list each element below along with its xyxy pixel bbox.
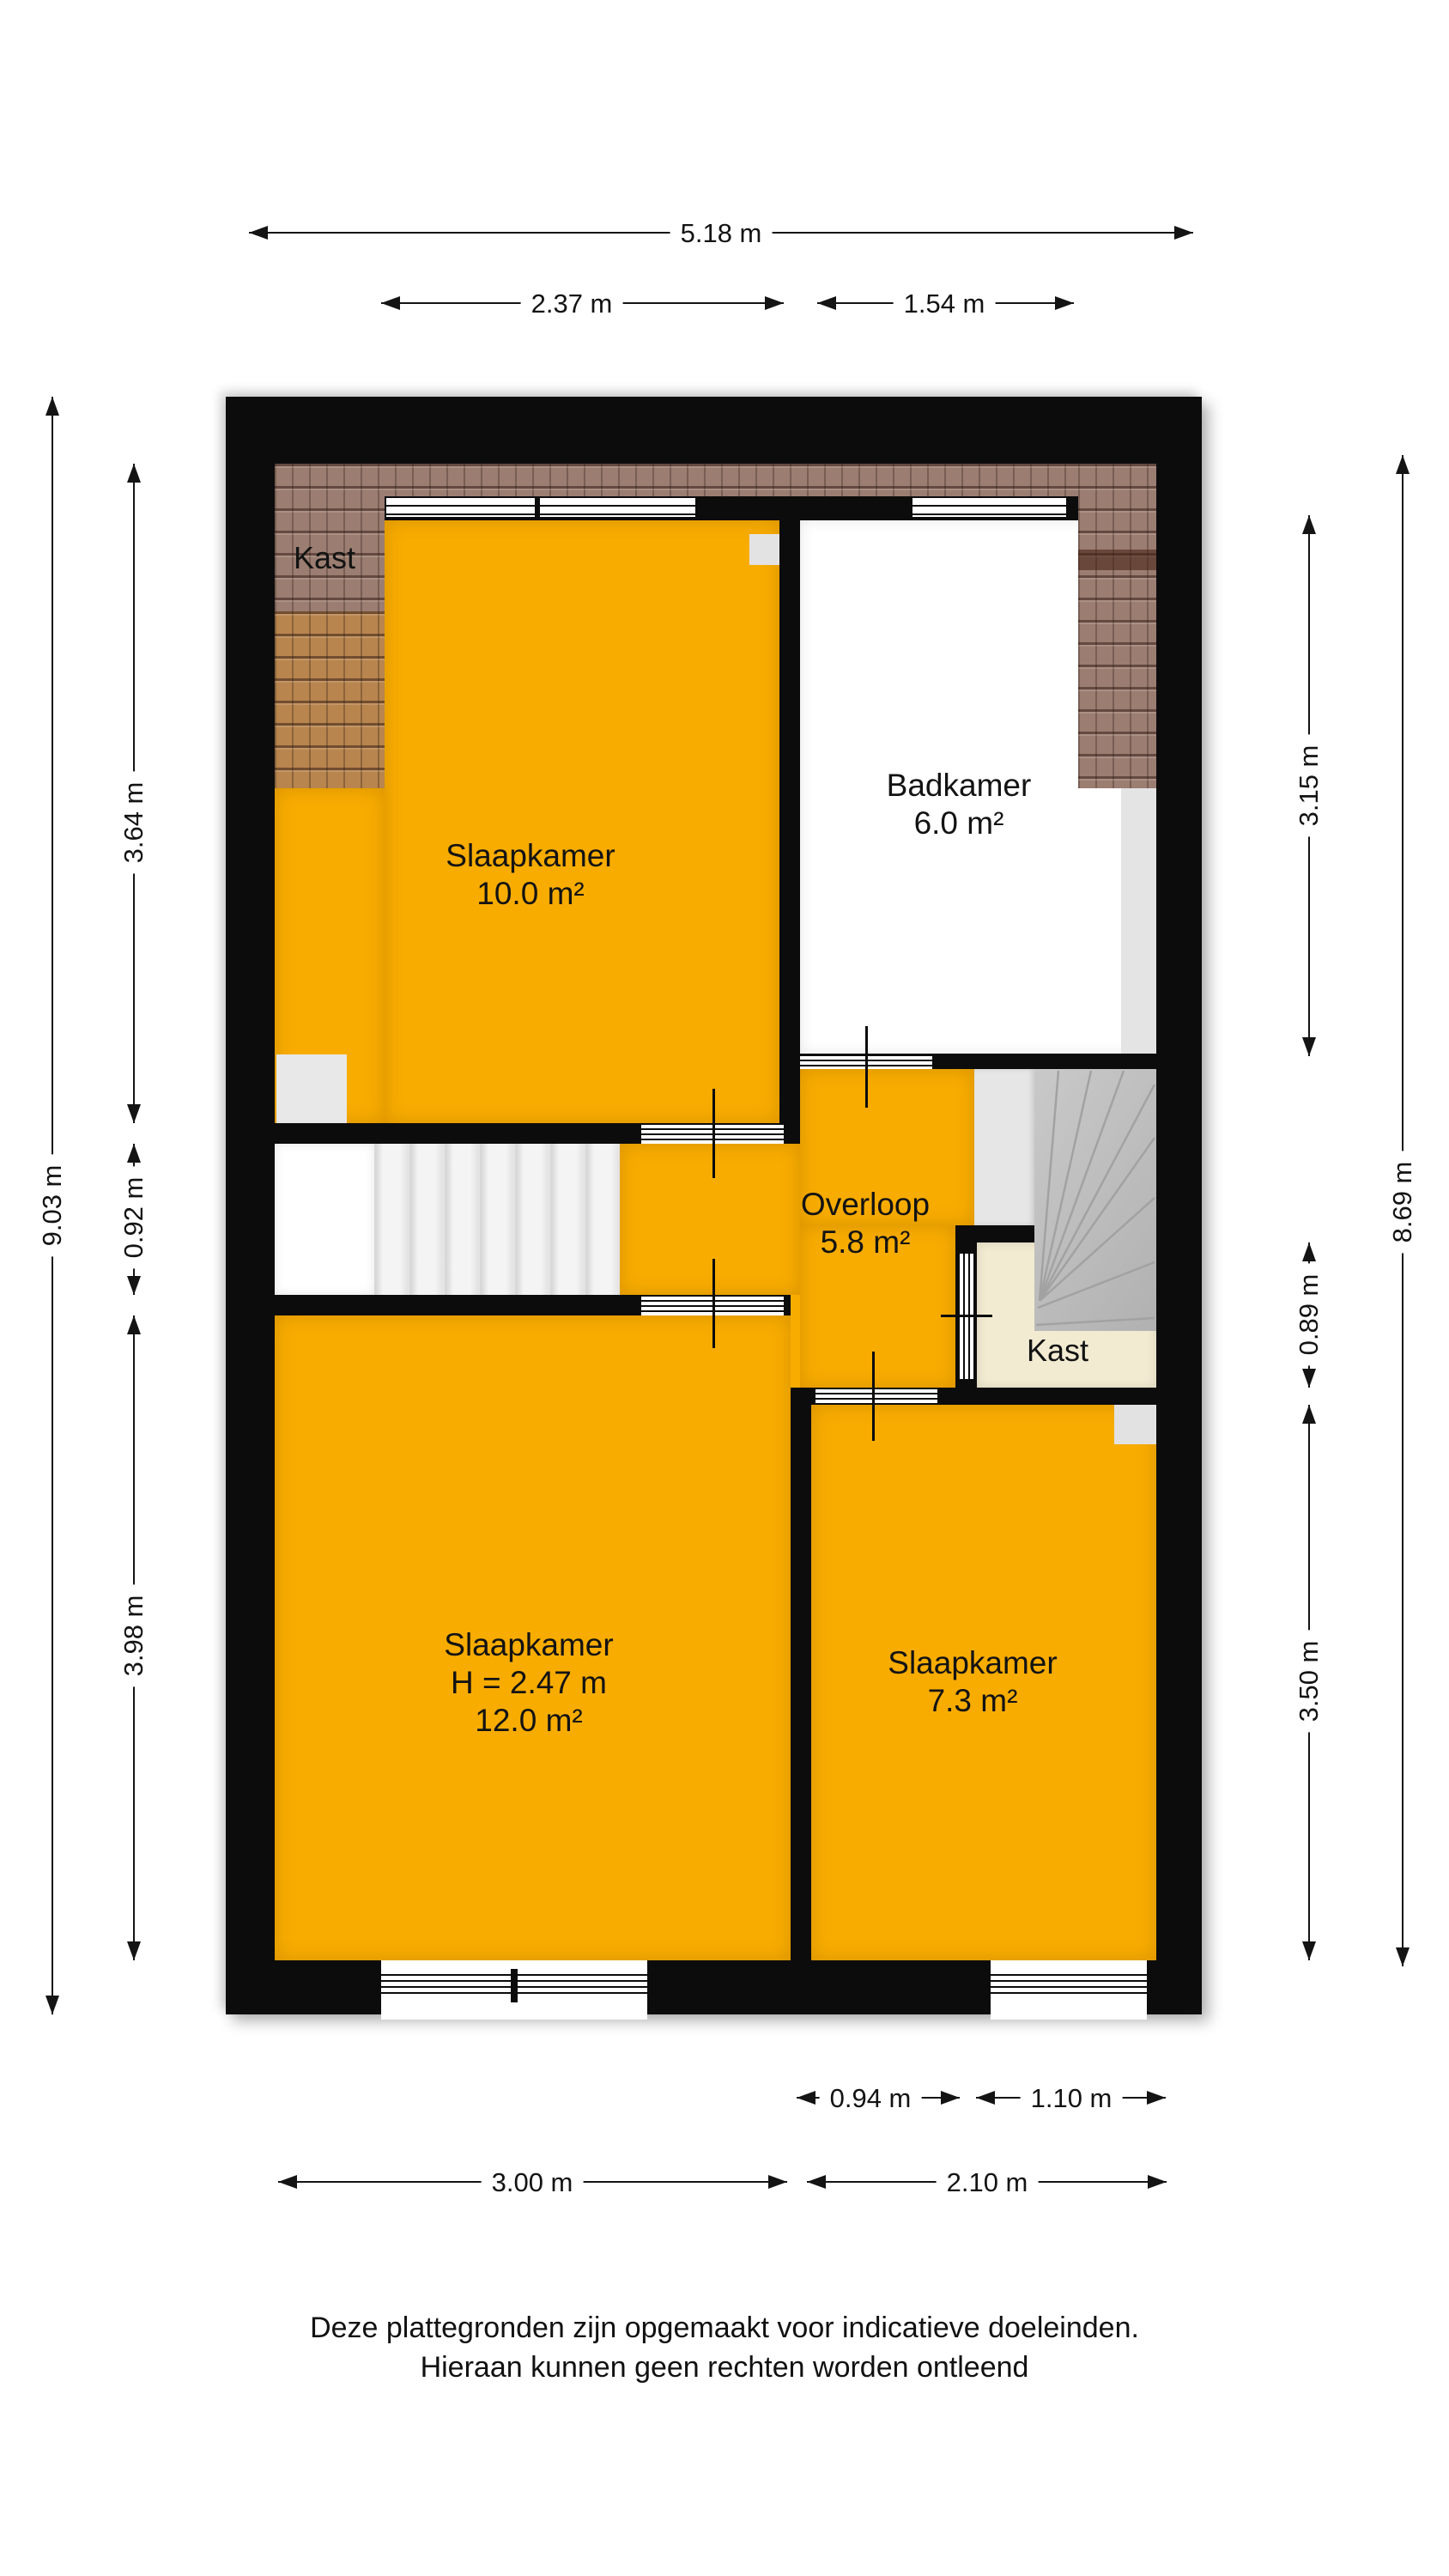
window-glazing-lines — [991, 1974, 1147, 1996]
arrow-down-icon — [45, 1996, 59, 2014]
room-area: 12.0 m² — [444, 1702, 613, 1740]
room-label-bathroom: Badkamer 6.0 m² — [887, 767, 1032, 842]
stairs-landing — [275, 1144, 374, 1295]
flue-niche-bedroom-large — [749, 534, 779, 565]
arrow-up-icon — [1302, 1405, 1316, 1424]
closet-niche-bedroom-large — [276, 1054, 347, 1123]
dim-label-bottom-window: 1.10 m — [1021, 2081, 1123, 2116]
winder-stairs — [1034, 1069, 1156, 1331]
arrow-left-icon — [278, 2175, 297, 2189]
arrow-right-icon — [1174, 226, 1193, 240]
room-label-landing-hall: Overloop 5.8 m² — [801, 1186, 930, 1261]
disclaimer-line-2: Hieraan kunnen geen rechten worden ontle… — [421, 2351, 1029, 2385]
arrow-up-icon — [127, 1315, 141, 1334]
room-label-bedroom-large: Slaapkamer 10.0 m² — [446, 837, 615, 913]
room-area: 10.0 m² — [446, 875, 615, 913]
room-label-bedroom-main: Slaapkamer H = 2.47 m 12.0 m² — [444, 1626, 613, 1740]
window-top-right — [911, 496, 1068, 519]
window-bottom-right — [991, 1960, 1147, 2020]
arrow-up-icon — [45, 397, 59, 416]
closet-top-roof-tiles-light — [275, 611, 385, 788]
roof-ridge-band — [1078, 550, 1156, 570]
arrow-up-icon — [127, 464, 141, 483]
arrow-right-icon — [768, 2175, 787, 2189]
arrow-left-icon — [249, 226, 268, 240]
room-name: Badkamer — [887, 767, 1032, 805]
building-outline: Kast Slaapkamer 10.0 m² Badkamer 6.0 m² … — [226, 397, 1202, 2014]
dim-label-right-closet: 0.89 m — [1292, 1264, 1326, 1366]
arrow-up-icon — [1396, 455, 1410, 474]
winder-stairs-treads-icon — [1034, 1069, 1156, 1331]
arrow-up-icon — [127, 1144, 141, 1163]
arrow-down-icon — [1302, 1941, 1316, 1960]
dim-label-top-left: 2.37 m — [521, 287, 623, 321]
room-label-bedroom-small: Slaapkamer 7.3 m² — [888, 1644, 1057, 1720]
room-name: Overloop — [801, 1186, 930, 1224]
door-bedroom-small — [815, 1388, 937, 1405]
room-area: 7.3 m² — [888, 1682, 1057, 1720]
room-name: Slaapkamer — [446, 837, 615, 875]
dim-label-left-bedroom-bottom: 3.98 m — [117, 1585, 151, 1687]
floorplan-page: 5.18 m 2.37 m 1.54 m 0.94 m 1.10 m 3.00 … — [0, 0, 1449, 2576]
arrow-right-icon — [765, 296, 784, 310]
dim-label-right-bedroom-small: 3.50 m — [1292, 1631, 1326, 1733]
window-bottom-left — [381, 1960, 647, 2020]
arrow-left-icon — [797, 2091, 815, 2105]
arrow-left-icon — [807, 2175, 826, 2189]
window-glazing-lines — [386, 505, 695, 515]
dim-label-height-total: 9.03 m — [35, 1155, 70, 1257]
arrow-down-icon — [1302, 1369, 1316, 1388]
window-glazing-lines — [912, 505, 1066, 515]
room-label-closet-top: Kast — [294, 539, 355, 577]
dim-label-left-bedroom-top: 3.64 m — [117, 772, 151, 874]
stairwell-landing-strip — [974, 1069, 1034, 1225]
dim-label-top-right: 1.54 m — [894, 287, 996, 321]
arrow-right-icon — [941, 2091, 960, 2105]
window-top-left — [385, 496, 697, 519]
arrow-down-icon — [1302, 1037, 1316, 1056]
room-name: Slaapkamer — [444, 1626, 613, 1664]
room-area: 6.0 m² — [887, 805, 1032, 842]
arrow-down-icon — [127, 1941, 141, 1960]
door-tick-bedroom-main — [712, 1259, 715, 1348]
door-tick-bedroom-large — [712, 1089, 715, 1178]
arrow-left-icon — [976, 2091, 995, 2105]
room-landing-hall-west — [620, 1144, 800, 1295]
dim-label-bottom-left-room: 3.00 m — [482, 2166, 584, 2200]
arrow-right-icon — [1055, 296, 1074, 310]
room-area: 5.8 m² — [801, 1224, 930, 1261]
arrow-down-icon — [127, 1104, 141, 1123]
arrow-up-icon — [1302, 515, 1316, 534]
closet-top-roof-tiles-dark — [275, 464, 385, 611]
room-label-closet-mid: Kast — [1027, 1332, 1088, 1370]
room-landing-hall-sliver — [791, 1295, 800, 1388]
room-bedroom-large — [385, 520, 779, 1123]
dim-label-bottom-right-room: 2.10 m — [937, 2166, 1039, 2200]
arrow-down-icon — [127, 1276, 141, 1295]
arrow-left-icon — [381, 296, 400, 310]
door-tick-closet-mid — [941, 1315, 992, 1317]
door-tick-bathroom — [865, 1026, 868, 1108]
flue-niche-bedroom-small — [1114, 1405, 1156, 1444]
window-mullion — [535, 498, 540, 517]
room-name: Slaapkamer — [888, 1644, 1057, 1682]
room-ceiling-height: H = 2.47 m — [444, 1664, 613, 1702]
arrow-right-icon — [1147, 2091, 1166, 2105]
arrow-down-icon — [1396, 1947, 1410, 1966]
dim-label-right-total: 8.69 m — [1385, 1151, 1420, 1254]
roof-tiles-top-strip — [275, 464, 1154, 496]
dim-label-right-bathroom: 3.15 m — [1292, 735, 1326, 837]
bathroom-knee-wall-strip — [1121, 788, 1156, 1054]
window-mullion — [511, 1969, 518, 2002]
door-tick-bedroom-small — [872, 1352, 875, 1441]
stairs-treads — [374, 1144, 620, 1295]
roof-tiles-right-slope — [1078, 464, 1156, 788]
arrow-up-icon — [1302, 1242, 1316, 1261]
dim-label-left-stairs: 0.92 m — [117, 1167, 151, 1269]
dim-label-width-total: 5.18 m — [670, 216, 773, 251]
arrow-left-icon — [817, 296, 836, 310]
disclaimer-line-1: Deze plattegronden zijn opgemaakt voor i… — [310, 2312, 1139, 2345]
dim-label-bottom-door: 0.94 m — [820, 2081, 922, 2116]
arrow-right-icon — [1148, 2175, 1167, 2189]
